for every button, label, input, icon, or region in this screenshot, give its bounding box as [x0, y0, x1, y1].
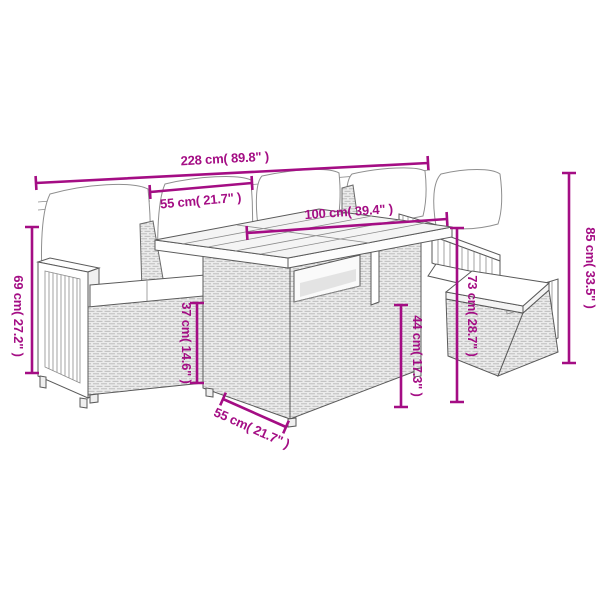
dimension-armrest-height-label: 69 cm( 27.2" ) — [11, 275, 26, 356]
dimension-overall-height: 85 cm( 33.5" ) — [562, 173, 598, 363]
dimension-table-height-label: 73 cm( 28.7" ) — [465, 275, 480, 356]
dimension-armrest-height: 69 cm( 27.2" ) — [11, 227, 39, 373]
dimension-overall-height-line — [562, 173, 576, 363]
dimension-seat-height-label: 37 cm( 14.6" ) — [179, 302, 194, 383]
dimension-armrest-height-line — [25, 227, 39, 373]
diagram-canvas: 228 cm( 89.8" ) 55 cm( 21.7" ) 100 cm( 3… — [0, 0, 600, 600]
dimension-overall-height-label: 85 cm( 33.5" ) — [583, 227, 598, 308]
table-left-face — [203, 246, 290, 419]
table-corner-post — [371, 244, 379, 305]
dimension-overall-width-label: 228 cm( 89.8" ) — [180, 149, 269, 169]
ottoman — [446, 271, 558, 376]
dimension-table-lower-height-label: 44 cm( 17.3" ) — [410, 315, 425, 396]
